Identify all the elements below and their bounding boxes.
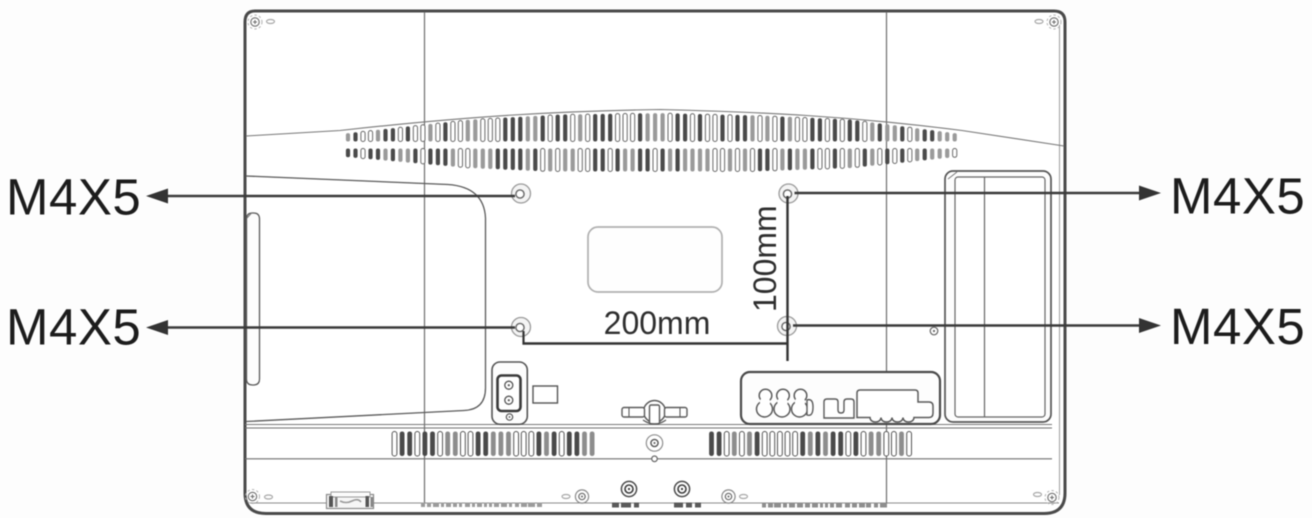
svg-text:M4X5: M4X5 <box>1170 298 1305 355</box>
svg-text:M4X5: M4X5 <box>6 299 141 356</box>
svg-text:200mm: 200mm <box>604 305 711 341</box>
svg-text:M4X5: M4X5 <box>1170 168 1305 225</box>
svg-text:100mm: 100mm <box>747 205 783 312</box>
svg-text:M4X5: M4X5 <box>6 169 141 226</box>
